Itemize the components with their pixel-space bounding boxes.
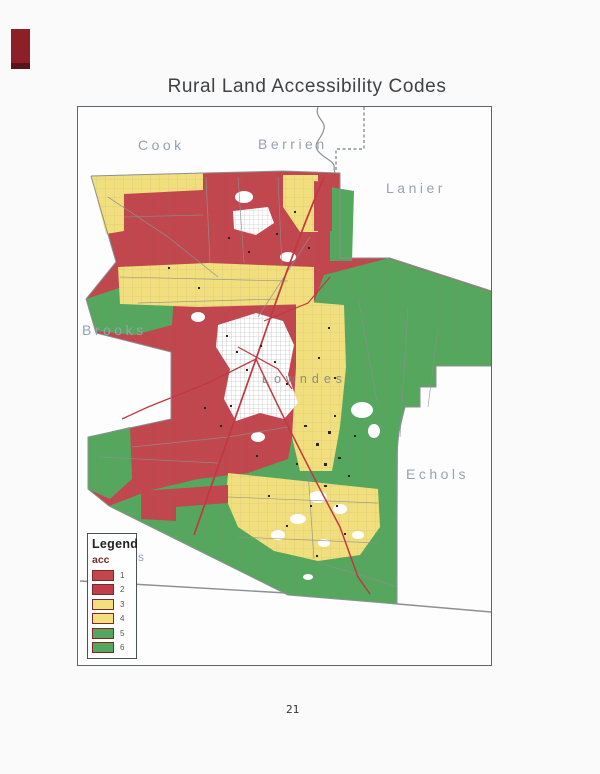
lowndes-county-region (78, 167, 491, 607)
legend-row: 3 (92, 599, 136, 610)
page-number: 21 (286, 703, 299, 716)
county-label-brooks: Brooks (82, 322, 147, 338)
county-label-echols: Echols (406, 466, 469, 482)
legend-label-6: 6 (120, 643, 124, 652)
legend-row: 6 (92, 642, 136, 653)
legend-label-2: 2 (120, 585, 124, 594)
legend-swatch-2 (92, 584, 114, 595)
county-label-lanier: Lanier (386, 180, 446, 196)
legend-row: 2 (92, 584, 136, 595)
scan-artifact-mark (11, 29, 30, 69)
legend-row: 4 (92, 613, 136, 624)
county-label-cook: Cook (138, 137, 185, 153)
legend-swatch-3 (92, 599, 114, 610)
legend-swatch-1 (92, 570, 114, 581)
legend-title: Legend (92, 537, 136, 551)
legend-label-4: 4 (120, 614, 124, 623)
county-label-lowndes: Lowndes (262, 372, 347, 386)
berrien-lanier-boundary (336, 107, 364, 177)
legend-swatch-4 (92, 613, 114, 624)
legend-label-1: 1 (120, 571, 124, 580)
map-legend: Legend acc 1 2 3 4 5 6 (87, 533, 137, 659)
legend-label-3: 3 (120, 600, 124, 609)
county-label-fragment: s (138, 550, 144, 564)
legend-swatch-6 (92, 642, 114, 653)
legend-field-name: acc (92, 554, 136, 566)
legend-row: 1 (92, 570, 136, 581)
page-title: Rural Land Accessibility Codes (0, 76, 600, 98)
legend-row: 5 (92, 628, 136, 639)
scanned-page: Rural Land Accessibility Codes (0, 0, 600, 774)
legend-label-5: 5 (120, 629, 124, 638)
legend-swatch-5 (92, 628, 114, 639)
county-label-berrien: Berrien (258, 136, 328, 152)
